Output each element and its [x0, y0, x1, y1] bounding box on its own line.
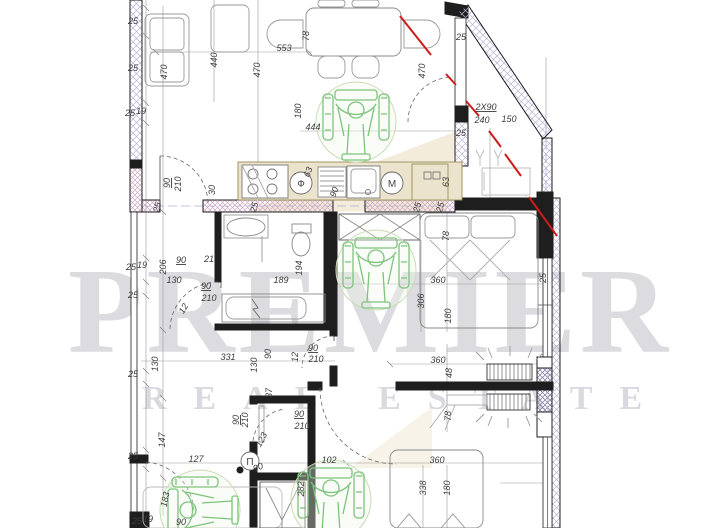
dimension-label: 206	[158, 259, 168, 275]
dimension-label: 30	[207, 185, 217, 195]
dimension-label: 25	[127, 451, 139, 461]
wheelchair-figure	[316, 82, 396, 162]
dimension-label: 240	[473, 115, 489, 125]
dimension-label: 25	[127, 369, 139, 379]
dimension-label: 19	[143, 514, 153, 524]
dimension-label: 63	[441, 177, 451, 187]
dimension-label: 444	[305, 122, 320, 132]
dimension-label: 90	[263, 349, 273, 359]
dimension-label: 210	[293, 421, 309, 431]
dimension-label: 25	[151, 200, 164, 214]
dimension-label: 25	[127, 16, 139, 26]
dimension-label: 180	[443, 308, 453, 323]
dimension-label: 553	[276, 43, 291, 53]
dimension-label: 150	[501, 114, 516, 124]
dimension-label: 12	[290, 352, 300, 362]
dimension-label: 90	[162, 178, 172, 188]
dimension-label: 90	[201, 281, 211, 291]
dimension-label: 90	[176, 517, 186, 527]
dimension-label: 25	[455, 128, 467, 138]
room-symbol-label: П	[246, 457, 253, 468]
dimension-label: 210	[200, 293, 216, 303]
dimension-label: 360	[430, 355, 445, 365]
dimension-label: 25	[131, 516, 143, 526]
dimension-label: 19	[136, 106, 146, 116]
dimension-label: 25	[127, 290, 139, 300]
dimension-label: 25	[127, 63, 139, 73]
dimension-label: 210	[240, 412, 250, 428]
dimension-label: 123	[253, 431, 269, 449]
dimension-label: 78	[441, 231, 451, 241]
dimension-label: 19	[137, 260, 147, 270]
dimension-label: 48	[444, 368, 454, 378]
dimension-label: 470	[252, 62, 262, 77]
dimension-label: 102	[321, 455, 336, 465]
dimension-label: 25	[455, 32, 467, 42]
dimension-label: 180	[442, 480, 452, 495]
wheelchair-figure	[336, 230, 416, 310]
dimension-label: 194	[294, 260, 304, 275]
dimension-label: 25	[538, 272, 548, 284]
dimension-label: 90	[308, 343, 318, 353]
dimension-label: 470	[417, 63, 427, 78]
dimension-label: 78	[301, 31, 311, 41]
floorplan-page: PREMIER REAL ESTATE	[0, 0, 717, 528]
dimension-label: 12	[177, 302, 191, 316]
dimension-label: 331	[220, 352, 235, 362]
dimension-label: 90	[176, 255, 186, 265]
dimension-label: 210	[307, 354, 323, 364]
dimension-label: 360	[430, 275, 445, 285]
dimension-label: 127	[188, 454, 204, 464]
dimension-label: 338	[418, 480, 428, 495]
dimension-label: 78	[443, 411, 453, 421]
room-symbol-label: M	[388, 179, 396, 190]
dimension-label: 21	[203, 254, 214, 264]
wheelchair-figure	[160, 470, 240, 528]
floor-plan-svg: 2525251947044047055378470251804442X90240…	[0, 0, 717, 528]
dimension-label: 90	[294, 409, 304, 419]
dimension-label: 180	[293, 103, 303, 118]
dimension-label: 130	[166, 275, 181, 285]
dimension-label: 147	[157, 432, 167, 448]
dimension-label: 440	[209, 52, 219, 67]
dimension-label: 360	[429, 455, 444, 465]
dimension-label: 282	[296, 481, 306, 497]
dimension-label: 130	[249, 357, 259, 372]
room-symbol-label: Ф	[297, 179, 305, 190]
dimension-label: 130	[150, 356, 160, 371]
dimension-label: 37	[264, 387, 274, 398]
dimension-label: 210	[173, 176, 183, 192]
dimension-label: 25	[125, 262, 137, 272]
dimension-label: 470	[159, 64, 169, 79]
dimension-label: 2X90	[474, 102, 496, 112]
dimension-label: 306	[416, 293, 426, 308]
dimension-label: 189	[273, 275, 288, 285]
dimension-label: 25	[124, 108, 136, 118]
